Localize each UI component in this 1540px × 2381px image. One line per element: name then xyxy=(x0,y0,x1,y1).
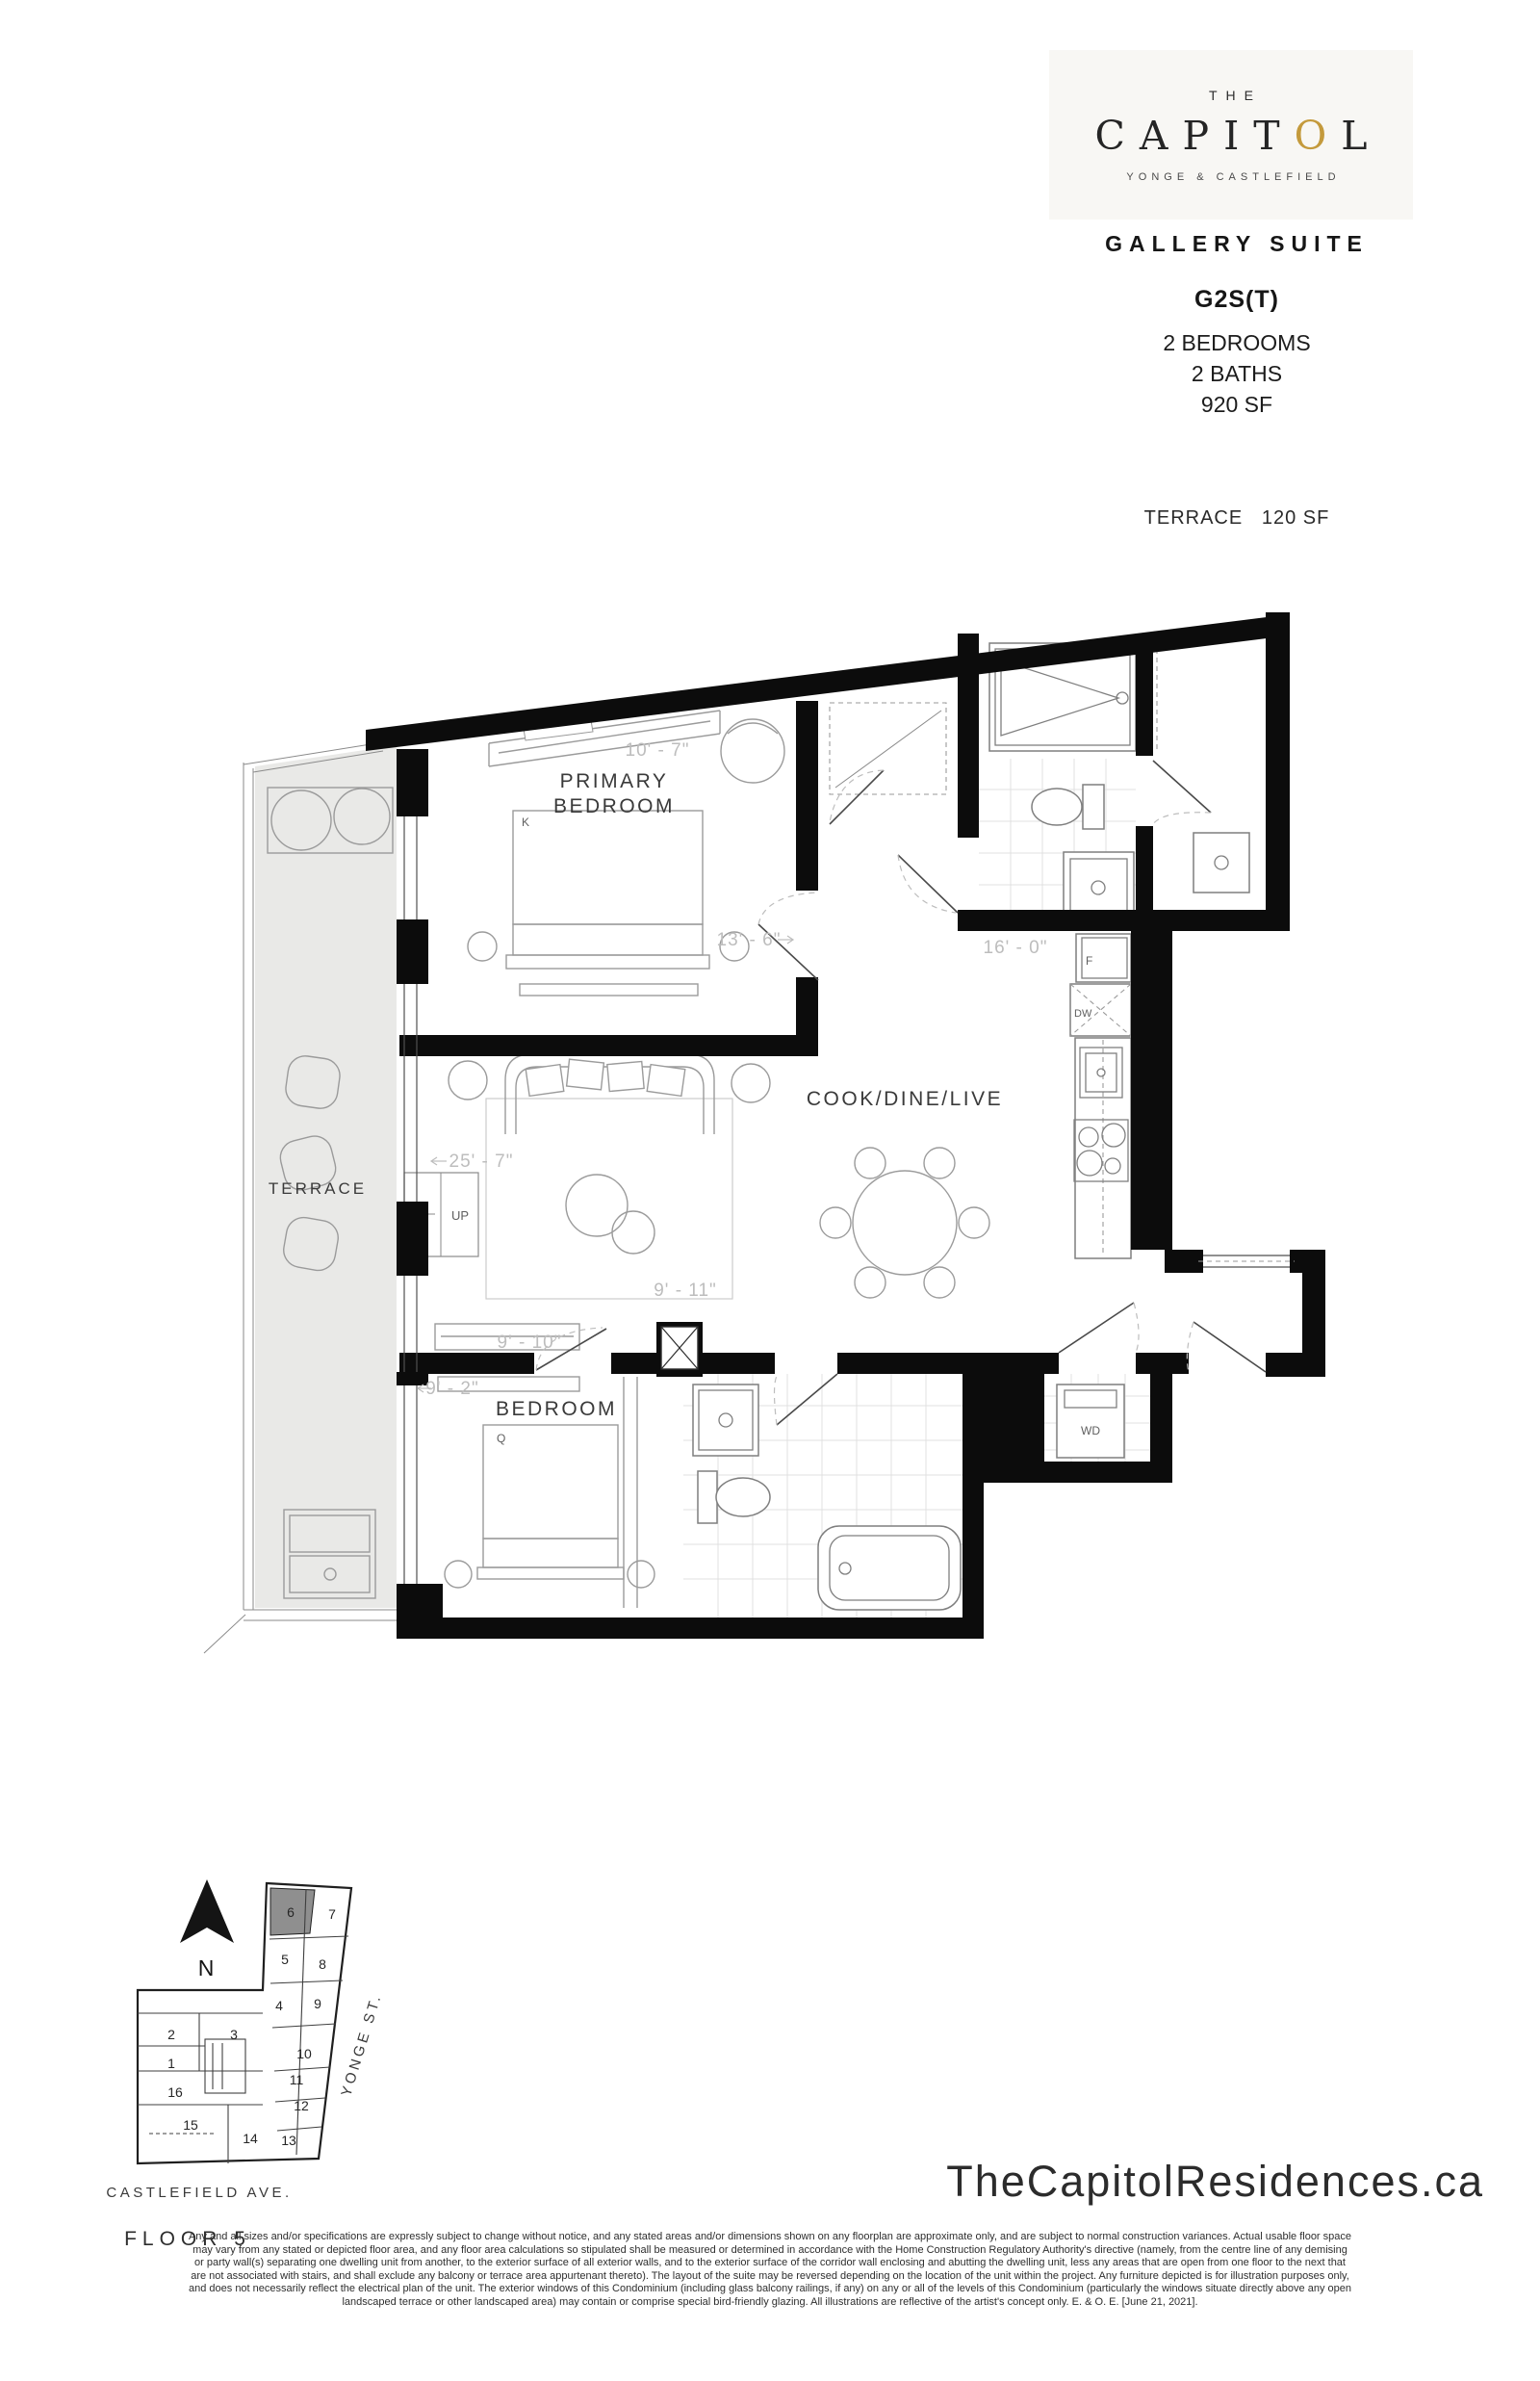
unit-11: 11 xyxy=(290,2072,304,2087)
unit-13: 13 xyxy=(281,2133,296,2148)
suite-specs: 2 BEDROOMS 2 BATHS 920 SF xyxy=(1039,327,1434,420)
unit-12: 12 xyxy=(294,2098,309,2113)
terrace-label: TERRACE xyxy=(269,1179,367,1198)
building-outline: 1 2 3 4 5 6 7 8 9 10 11 12 13 14 15 16 xyxy=(138,1883,351,2163)
logo-wordmark: CAPITOL xyxy=(1095,113,1382,159)
plant xyxy=(731,1064,770,1102)
website-url: TheCapitolResidences.ca xyxy=(946,2157,1484,2207)
plant xyxy=(449,1061,487,1100)
brand-logo: THE CAPITOL YONGE & CASTLEFIELD xyxy=(1049,50,1413,220)
unit-16: 16 xyxy=(167,2084,183,2100)
floorplan-sheet: THE CAPITOL YONGE & CASTLEFIELD GALLERY … xyxy=(0,0,1540,2381)
logo-name-pre: CAPIT xyxy=(1095,113,1295,159)
dining-table xyxy=(853,1171,957,1275)
terrace-area: TERRACE xyxy=(204,742,433,1653)
disclaimer-line: Any and all sizes and/or specifications … xyxy=(43,2231,1497,2244)
dim-bedroom-depth: 9' - 2" xyxy=(425,1379,478,1399)
unit-code: G2S(T) xyxy=(1039,286,1434,314)
suite-name: GALLERY SUITE xyxy=(1039,231,1434,257)
dim-bedroom-width: 9' - 10" xyxy=(498,1333,562,1353)
living-label: COOK/DINE/LIVE xyxy=(807,1088,1003,1110)
dim-living-length: 25' - 7" xyxy=(449,1152,514,1172)
primary-closet xyxy=(830,703,946,794)
spec-bedrooms: 2 BEDROOMS xyxy=(1039,327,1434,358)
bath1-fixtures xyxy=(989,640,1249,924)
shaft xyxy=(656,1322,703,1377)
north-arrow: N xyxy=(180,1879,234,1980)
unit-3: 3 xyxy=(230,2027,238,2042)
toilet xyxy=(716,1478,770,1516)
unit-7: 7 xyxy=(328,1906,336,1922)
terrace-spec: TERRACE 120 SF xyxy=(1039,507,1434,530)
dishwasher-tag: DW xyxy=(1074,1008,1092,1020)
armchair xyxy=(721,719,784,783)
spec-baths: 2 BATHS xyxy=(1039,358,1434,389)
fridge xyxy=(1076,934,1131,982)
logo-gold-o: O xyxy=(1295,113,1342,159)
fridge-tag: F xyxy=(1086,954,1092,968)
unit-6: 6 xyxy=(287,1904,295,1920)
disclaimer-line: and does not necessarily reflect the ele… xyxy=(43,2283,1497,2296)
queen-bed-tag: Q xyxy=(497,1432,505,1445)
laundry-fixtures: WD xyxy=(1057,1385,1124,1458)
disclaimer-line: are not associated with stairs, and shal… xyxy=(43,2270,1497,2284)
vanity-sink xyxy=(693,1385,758,1456)
yonge-street-label: YONGE ST. xyxy=(338,1991,385,2099)
unit-numbers: 1 2 3 4 5 6 7 8 9 10 11 12 13 14 15 16 xyxy=(167,1904,336,2148)
unit-4: 4 xyxy=(275,1998,283,2013)
primary-bedroom-label-1: PRIMARY xyxy=(560,770,669,792)
unit-14: 14 xyxy=(243,2131,258,2146)
toilet xyxy=(1032,789,1082,825)
legal-disclaimer: Any and all sizes and/or specifications … xyxy=(43,2231,1497,2310)
plan-labels: PRIMARY BEDROOM COOK/DINE/LIVE BEDROOM 1… xyxy=(418,740,1047,1420)
king-bed-tag: K xyxy=(522,815,529,829)
castlefield-label: CASTLEFIELD AVE. xyxy=(106,2185,292,2201)
floorplan-drawing: TERRACE xyxy=(144,607,1347,1666)
bedroom-label: BEDROOM xyxy=(496,1398,617,1420)
disclaimer-line: landscaped terrace or other landscaped a… xyxy=(43,2296,1497,2310)
walls xyxy=(366,612,1325,1639)
dim-primary-depth: 13' - 6" xyxy=(717,930,782,950)
unit-5: 5 xyxy=(281,1952,289,1967)
unit-10: 10 xyxy=(296,2046,312,2061)
unit-1: 1 xyxy=(167,2056,175,2071)
coffee-table xyxy=(566,1175,628,1236)
dim-kitchen: 16' - 0" xyxy=(984,938,1048,958)
spec-area: 920 SF xyxy=(1039,389,1434,420)
disclaimer-line: may vary from any stated or depicted flo… xyxy=(43,2244,1497,2258)
logo-name-post: L xyxy=(1341,113,1381,159)
washer-dryer-tag: WD xyxy=(1081,1424,1100,1437)
logo-the: THE xyxy=(1209,88,1262,103)
unit-2: 2 xyxy=(167,2027,175,2042)
disclaimer-line: or party wall(s) separating one dwelling… xyxy=(43,2257,1497,2270)
keyplan: N 1 2 3 4 5 6 xyxy=(72,1873,419,2258)
north-label: N xyxy=(198,1955,217,1980)
up-label: UP xyxy=(451,1208,469,1223)
unit-8: 8 xyxy=(319,1956,326,1972)
unit-9: 9 xyxy=(314,1996,321,2011)
rug xyxy=(486,1099,732,1299)
kitchen: F DW xyxy=(1070,934,1131,1258)
dim-living-width: 9' - 11" xyxy=(654,1281,717,1301)
washer-dryer xyxy=(1057,1385,1124,1458)
logo-tagline: YONGE & CASTLEFIELD xyxy=(1126,171,1340,183)
primary-bedroom-label-2: BEDROOM xyxy=(553,795,675,817)
bath2-fixtures xyxy=(693,1385,961,1610)
unit-15: 15 xyxy=(183,2117,198,2133)
dim-primary-width: 10' - 7" xyxy=(626,740,690,761)
